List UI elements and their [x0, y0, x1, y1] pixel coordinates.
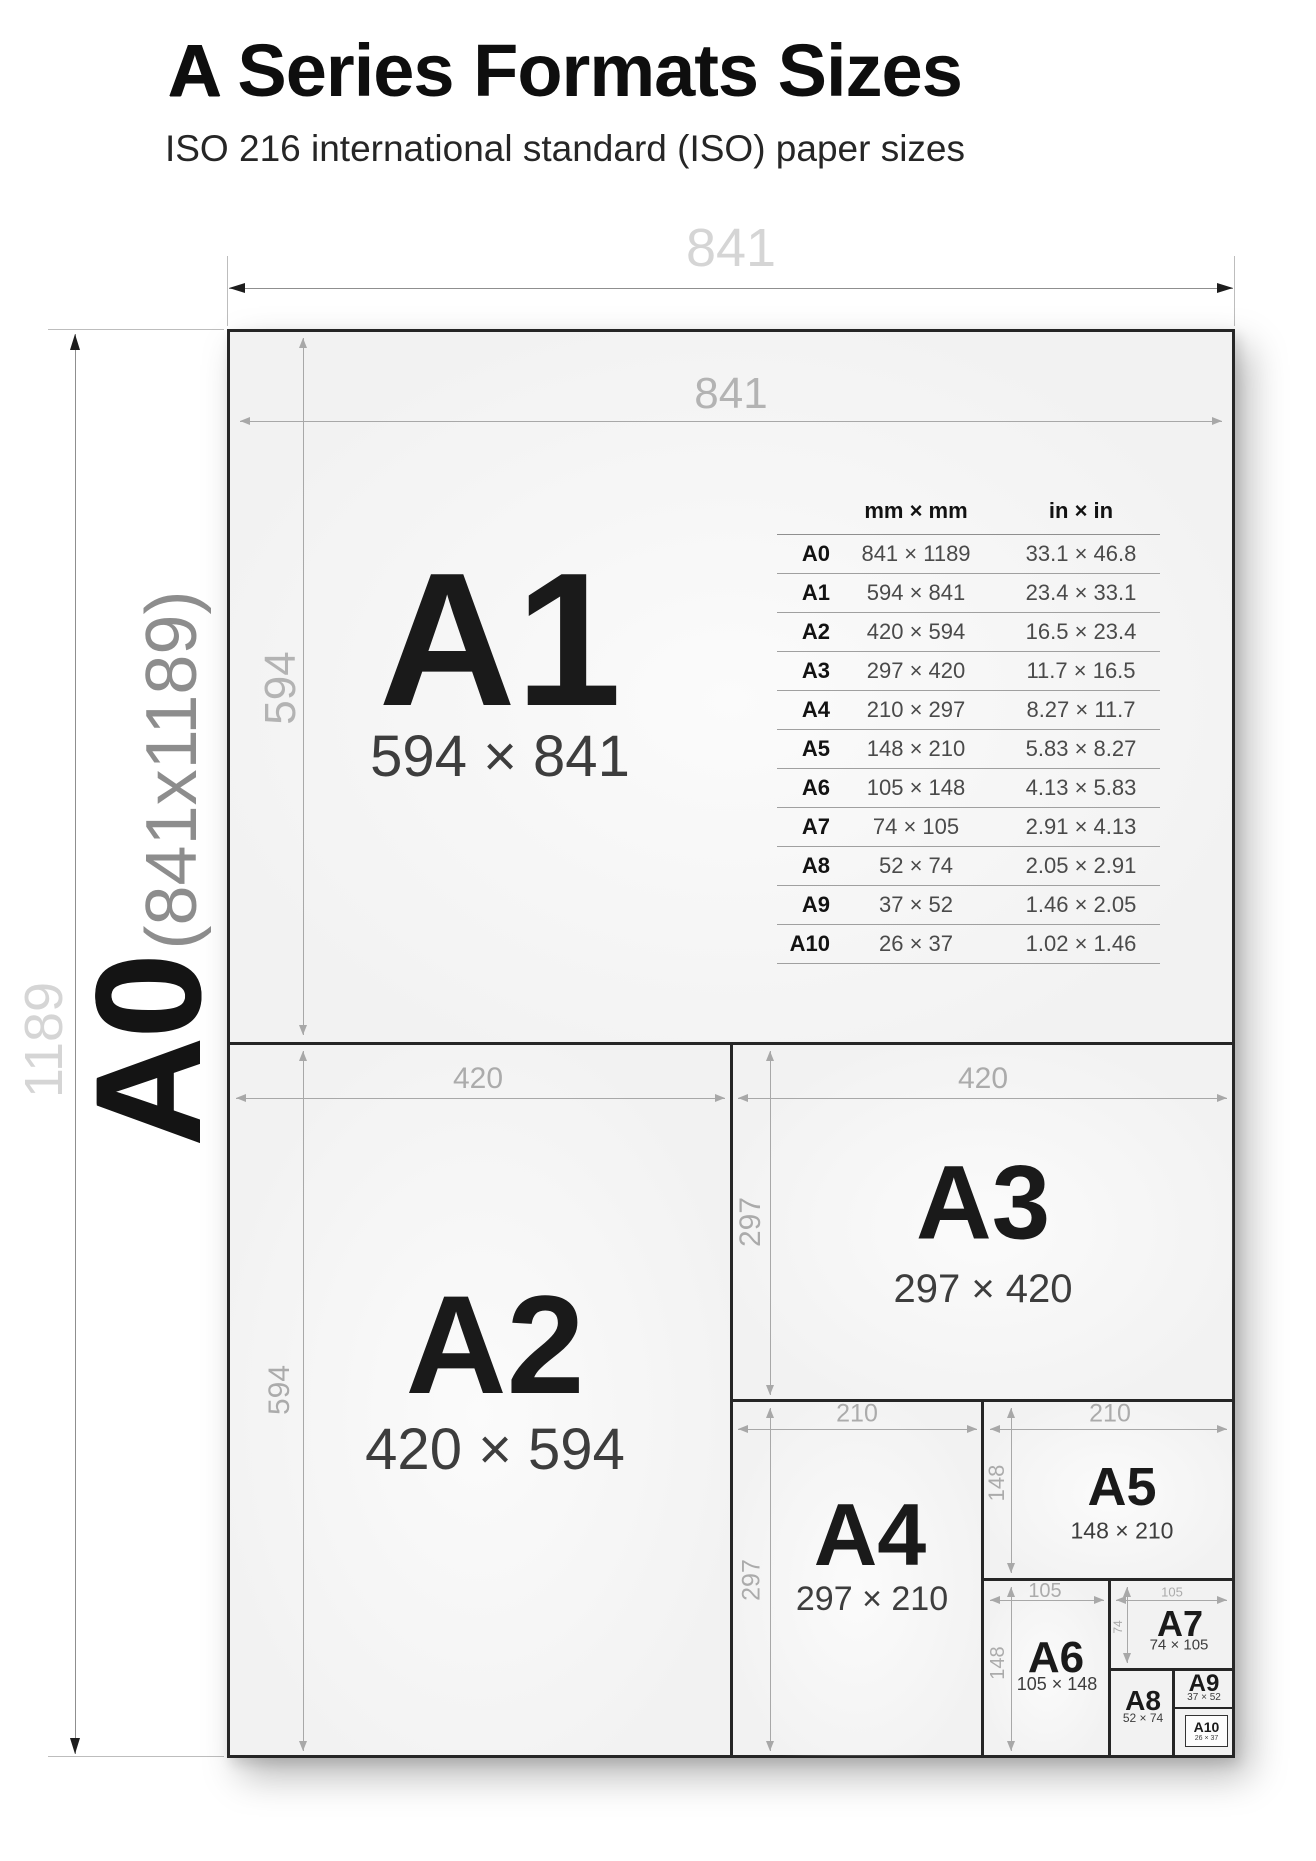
dim-label-a5-height: 148 [986, 1465, 1008, 1502]
size-table: mm × mm in × in A0 841 × 1189 33.1 × 46.… [777, 487, 1160, 964]
paper-a4-size: 297 × 210 [796, 1582, 948, 1616]
paper-a1-name: A1 [379, 545, 622, 735]
dim-label-outer-width: 841 [686, 221, 776, 275]
dim-ext-outer-width-left [227, 256, 228, 326]
row-in: 33.1 × 46.8 [1002, 541, 1160, 567]
dim-line-a4-height [770, 1408, 771, 1751]
dim-label-a2-width: 420 [453, 1064, 503, 1094]
row-mm: 148 × 210 [830, 736, 1002, 762]
row-label: A9 [777, 892, 830, 918]
paper-a6-size: 105 × 148 [1017, 1675, 1098, 1693]
side-label-a0-dims: (841x1189) [136, 591, 208, 950]
paper-a4-name: A4 [814, 1491, 927, 1579]
paper-a5-name: A5 [1087, 1460, 1156, 1514]
dim-line-a7-height [1127, 1587, 1128, 1663]
table-row: A7 74 × 105 2.91 × 4.13 [777, 808, 1160, 847]
row-label: A4 [777, 697, 830, 723]
row-label: A5 [777, 736, 830, 762]
dim-line-a2-height [303, 1051, 304, 1751]
table-row: A9 37 × 52 1.46 × 2.05 [777, 886, 1160, 925]
dim-label-a4-height: 297 [740, 1559, 765, 1601]
title-bold-letter: A [168, 29, 218, 112]
dim-line-a4-width [738, 1429, 977, 1430]
dim-line-outer-width [229, 288, 1233, 289]
row-label: A8 [777, 853, 830, 879]
paper-a3-name: A3 [916, 1151, 1050, 1256]
row-mm: 210 × 297 [830, 697, 1002, 723]
row-mm: 420 × 594 [830, 619, 1002, 645]
row-mm: 841 × 1189 [830, 541, 1002, 567]
dim-label-a1-width: 841 [694, 372, 767, 416]
paper-a9-size: 37 × 52 [1187, 1693, 1221, 1703]
row-in: 11.7 × 16.5 [1002, 658, 1160, 684]
paper-a10-size: 26 × 37 [1195, 1735, 1219, 1742]
dim-label-a6-height: 148 [988, 1646, 1008, 1679]
page-subtitle: ISO 216 international standard (ISO) pap… [0, 128, 1130, 170]
dim-line-a6-height [1011, 1587, 1012, 1751]
table-row: A5 148 × 210 5.83 × 8.27 [777, 730, 1160, 769]
dim-label-a7-height: 74 [1112, 1620, 1124, 1633]
table-row: A4 210 × 297 8.27 × 11.7 [777, 691, 1160, 730]
dim-line-a3-width [738, 1098, 1227, 1099]
dim-ext-outer-width-right [1234, 256, 1235, 326]
dim-label-a5-width: 210 [1089, 1402, 1131, 1427]
row-in: 8.27 × 11.7 [1002, 697, 1160, 723]
paper-a2-size: 420 × 594 [365, 1421, 625, 1479]
dim-label-a1-height: 594 [259, 651, 303, 724]
paper-a8-size: 52 × 74 [1123, 1712, 1163, 1724]
table-header-row: mm × mm in × in [777, 487, 1160, 535]
row-mm: 26 × 37 [830, 931, 1002, 957]
row-mm: 594 × 841 [830, 580, 1002, 606]
table-row: A10 26 × 37 1.02 × 1.46 [777, 925, 1160, 964]
table-row: A6 105 × 148 4.13 × 5.83 [777, 769, 1160, 808]
dim-line-a6-width [990, 1600, 1104, 1601]
divider-a9-a10 [1174, 1707, 1235, 1709]
row-label: A1 [777, 580, 830, 606]
paper-a1-size: 594 × 841 [370, 728, 630, 786]
table-row: A3 297 × 420 11.7 × 16.5 [777, 652, 1160, 691]
row-label: A6 [777, 775, 830, 801]
page-title: A Series Formats Sizes [0, 28, 1130, 113]
row-label: A7 [777, 814, 830, 840]
table-row: A1 594 × 841 23.4 × 33.1 [777, 574, 1160, 613]
dim-line-a2-width [236, 1098, 725, 1099]
title-rest: Series Formats Sizes [218, 29, 962, 112]
side-label-a0-name: A0 [73, 954, 223, 1146]
divider-a8-a9 [1172, 1670, 1175, 1758]
row-mm: 37 × 52 [830, 892, 1002, 918]
dim-line-a1-width [240, 421, 1222, 422]
paper-a7-size: 74 × 105 [1150, 1638, 1209, 1653]
table-row: A8 52 × 74 2.05 × 2.91 [777, 847, 1160, 886]
paper-a10-name: A10 [1194, 1720, 1220, 1734]
header-in: in × in [1002, 498, 1160, 524]
row-label: A2 [777, 619, 830, 645]
dim-ext-outer-height-top [48, 329, 224, 330]
row-in: 1.02 × 1.46 [1002, 931, 1160, 957]
dim-line-a7-width [1116, 1600, 1227, 1601]
paper-a5-size: 148 × 210 [1071, 1520, 1174, 1543]
dim-label-outer-height: 1189 [17, 982, 71, 1098]
row-in: 23.4 × 33.1 [1002, 580, 1160, 606]
paper-a2-name: A2 [406, 1275, 585, 1415]
table-row: A2 420 × 594 16.5 × 23.4 [777, 613, 1160, 652]
dim-line-a5-height [1011, 1408, 1012, 1573]
row-mm: 105 × 148 [830, 775, 1002, 801]
dim-line-a3-height [770, 1051, 771, 1395]
dim-ext-outer-height-bottom [48, 1756, 224, 1757]
row-in: 1.46 × 2.05 [1002, 892, 1160, 918]
dim-label-a7-width: 105 [1161, 1586, 1183, 1599]
paper-a3-size: 297 × 420 [893, 1269, 1072, 1309]
row-mm: 297 × 420 [830, 658, 1002, 684]
dim-label-a2-height: 594 [265, 1365, 295, 1415]
header-mm: mm × mm [830, 498, 1002, 524]
row-mm: 74 × 105 [830, 814, 1002, 840]
row-in: 4.13 × 5.83 [1002, 775, 1160, 801]
table-row: A0 841 × 1189 33.1 × 46.8 [777, 535, 1160, 574]
row-mm: 52 × 74 [830, 853, 1002, 879]
row-in: 2.91 × 4.13 [1002, 814, 1160, 840]
dim-label-a4-width: 210 [836, 1402, 878, 1427]
dim-label-a3-height: 297 [736, 1197, 766, 1247]
row-label: A3 [777, 658, 830, 684]
row-in: 5.83 × 8.27 [1002, 736, 1160, 762]
paper-a10: A10 26 × 37 [1185, 1715, 1228, 1747]
row-in: 2.05 × 2.91 [1002, 853, 1160, 879]
row-label: A10 [777, 931, 830, 957]
dim-line-a1-height [303, 338, 304, 1035]
row-label: A0 [777, 541, 830, 567]
paper-size-diagram: A Series Formats Sizes ISO 216 internati… [0, 0, 1316, 1861]
dim-label-a6-width: 105 [1028, 1581, 1061, 1601]
dim-line-a5-width [990, 1429, 1227, 1430]
row-in: 16.5 × 23.4 [1002, 619, 1160, 645]
dim-label-a3-width: 420 [958, 1064, 1008, 1094]
